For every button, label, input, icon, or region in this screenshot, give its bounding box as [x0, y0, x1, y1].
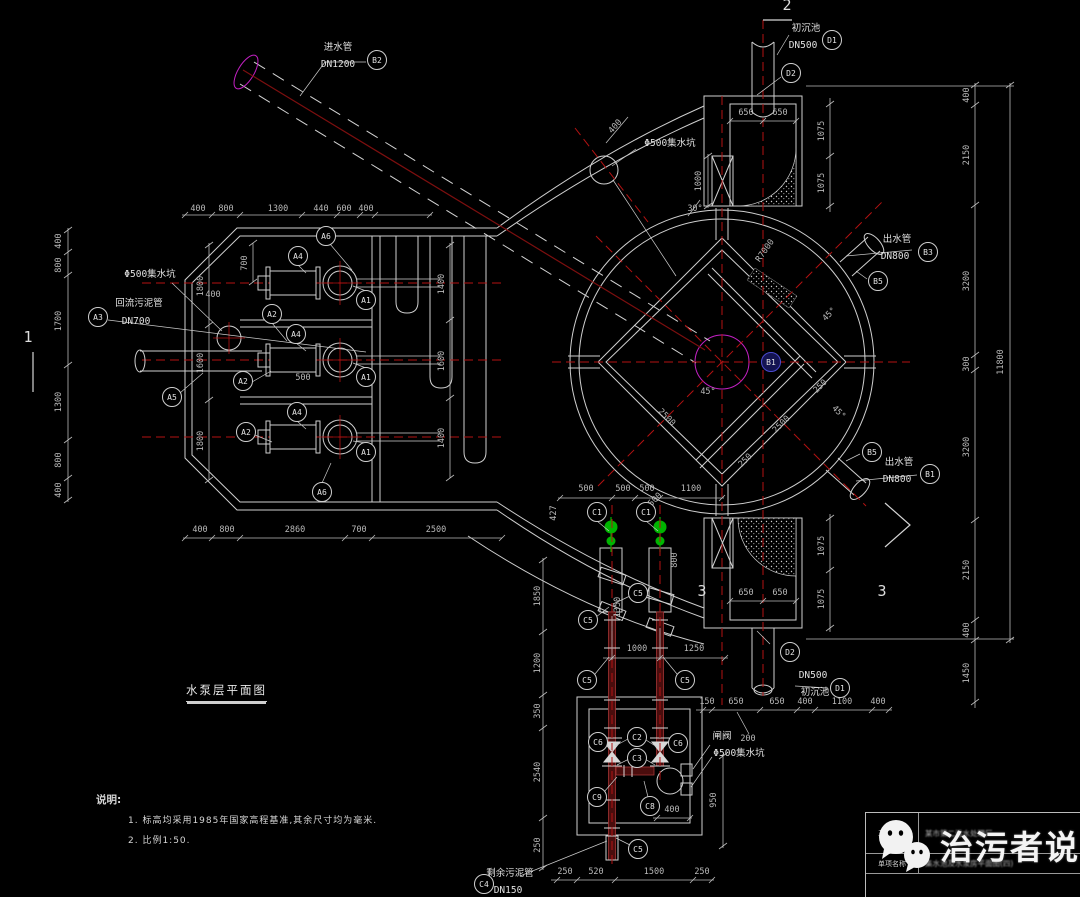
pipe-label: DN150: [494, 885, 523, 896]
tag-label: C9: [592, 793, 602, 802]
dim-text: 800: [219, 525, 234, 535]
dim-text: 2150: [962, 145, 972, 165]
pipe-label: 出水管: [883, 233, 912, 245]
dim-text: 1700: [54, 311, 64, 331]
tag-label: C1: [641, 508, 651, 517]
watermark-brand: 治污者说: [940, 821, 1080, 869]
dim-text: 1400: [437, 428, 447, 448]
wechat-icon: [874, 815, 936, 875]
dim-text: 400: [797, 697, 812, 707]
dim-text: 400: [358, 204, 373, 214]
tag-bubble-layer: B2D1D2A6A4A1A2A4A1A2A4A2A1A6A3A5B3B5B5B1…: [89, 31, 940, 894]
tag-label: C8: [645, 802, 655, 811]
dim-text: 2860: [285, 525, 305, 535]
dim-text: 250: [557, 867, 572, 877]
tag-label: A5: [167, 393, 177, 402]
dim-text: 800: [218, 204, 233, 214]
dim-text: 1350: [613, 597, 623, 617]
dim-text: 2500: [771, 414, 793, 436]
dim-text: 700: [351, 525, 366, 535]
tag-label: A4: [292, 408, 302, 417]
dim-text: 45°: [829, 404, 847, 422]
dim-text: 1500: [644, 867, 664, 877]
gate-well-bottom: [704, 518, 802, 695]
tag-label: D1: [835, 684, 845, 693]
pipe-label: DN500: [799, 670, 828, 681]
dim-text: 600: [336, 204, 351, 214]
dim-text: 650: [772, 588, 787, 598]
pipe-label: DN700: [122, 316, 151, 327]
tag-label: C6: [593, 738, 603, 747]
dim-text: 150: [699, 697, 714, 707]
dim-text: 1000: [627, 644, 647, 654]
tag-label: A2: [238, 377, 248, 386]
tag-label: A4: [293, 252, 303, 261]
upper-channel-arc: [497, 106, 704, 236]
dim-text: 1075: [817, 536, 827, 556]
dim-text: 250: [694, 867, 709, 877]
pipe-label: DN800: [881, 251, 910, 262]
tag-label: C5: [582, 676, 592, 685]
pipe-label: 初沉池: [801, 686, 830, 698]
tag-label: C5: [633, 845, 643, 854]
dim-text: 1075: [817, 589, 827, 609]
dim-text: 1300: [54, 392, 64, 412]
dim-text: 650: [738, 108, 753, 118]
notes-block: 说明: 1. 标高均采用1985年国家高程基准,其余尺寸均为毫米. 2. 比例1…: [96, 792, 377, 853]
dim-text: 1250: [684, 644, 704, 654]
tag-label: C3: [632, 754, 642, 763]
tag-label: B1: [925, 470, 935, 479]
tag-label: A4: [291, 330, 301, 339]
stair-hatch: [747, 268, 797, 308]
dim-text: 520: [588, 867, 603, 877]
pipe-label: Φ500集水坑: [713, 747, 765, 759]
section-number: 3: [877, 582, 886, 600]
dim-text: 250: [737, 452, 755, 470]
dim-text: 500: [639, 484, 654, 494]
pipe-label: 闸阀: [712, 730, 731, 742]
dim-text: 2540: [533, 762, 543, 782]
tag-label: C1: [592, 508, 602, 517]
dim-text: 1100: [681, 484, 701, 494]
tag-label: A3: [93, 313, 103, 322]
sump-circle: [657, 768, 683, 794]
dim-text: 2500: [426, 525, 446, 535]
dim-text: 1450: [962, 663, 972, 683]
check-valve-left: [605, 517, 618, 552]
watermark: 治污者说: [874, 815, 1080, 875]
dim-text: 1600: [196, 353, 206, 373]
tag-label: C4: [479, 880, 489, 889]
tag-label: A1: [361, 373, 371, 382]
drawing-title: 水泵层平面图: [186, 682, 267, 702]
pipe-label: 初沉池: [792, 22, 821, 34]
dim-text: 1600: [437, 351, 447, 371]
tag-label: B2: [372, 56, 382, 65]
dim-text: 427: [549, 505, 559, 520]
dim-text: 1100: [832, 697, 852, 707]
section-number: 3: [697, 582, 706, 600]
dim-text: 440: [313, 204, 328, 214]
tag-label: C5: [680, 676, 690, 685]
dim-text: 400: [664, 805, 679, 815]
dim-text: 1075: [817, 173, 827, 193]
dim-text: 500: [295, 373, 310, 383]
dim-text: 2150: [962, 560, 972, 580]
tag-label: D1: [827, 36, 837, 45]
dim-text: 1850: [533, 586, 543, 606]
pipe-label: DN500: [789, 40, 818, 51]
dim-text: 45°: [700, 387, 715, 397]
tag-label: C5: [583, 616, 593, 625]
dim-text: 3200: [962, 437, 972, 457]
notes-heading: 说明:: [96, 792, 377, 807]
dim-text: 400: [962, 87, 972, 102]
dim-text: 1400: [437, 274, 447, 294]
dim-text: 400: [870, 697, 885, 707]
note-item: 1. 标高均采用1985年国家高程基准,其余尺寸均为毫米.: [128, 813, 377, 826]
tag-label: C2: [632, 733, 642, 742]
dim-text: 800: [54, 452, 64, 467]
tag-label: A2: [267, 310, 277, 319]
dim-text: 400: [190, 204, 205, 214]
section-number: 2: [782, 0, 791, 14]
pump-house-walls: [185, 106, 704, 644]
tag-label: B5: [867, 448, 877, 457]
dim-text: 350: [533, 703, 543, 718]
section-number: 1: [23, 328, 32, 346]
dim-text: 250: [812, 378, 830, 396]
dim-text: 650: [738, 588, 753, 598]
dim-text: 200: [740, 734, 755, 744]
tag-label: C6: [673, 739, 683, 748]
dim-text: 3200: [962, 271, 972, 291]
tag-label: A6: [317, 488, 327, 497]
dim-text: 1000: [694, 171, 704, 191]
dim-text: 1300: [268, 204, 288, 214]
dim-text: R7000: [754, 238, 777, 265]
dim-text: 30°: [687, 204, 702, 214]
dim-text: 400: [607, 118, 625, 136]
dim-text: 500: [578, 484, 593, 494]
tag-label: B1: [766, 358, 776, 367]
cad-drawing-canvas: 4008001300440600400400800170013008004004…: [0, 0, 1080, 897]
dim-text: 400: [205, 290, 220, 300]
header-pipe: [616, 767, 654, 775]
tag-label: A1: [361, 448, 371, 457]
dim-text: 400: [962, 622, 972, 637]
dim-text: 400: [192, 525, 207, 535]
dimension-text-layer: 4008001300440600400400800170013008004004…: [54, 87, 1006, 877]
dim-text: 650: [769, 697, 784, 707]
pipe-label: 回流污泥管: [115, 297, 163, 309]
dim-text: 400: [54, 482, 64, 497]
tag-label: A2: [241, 428, 251, 437]
tag-label: B3: [923, 248, 933, 257]
dim-text: 1200: [533, 653, 543, 673]
dim-text: 45°: [821, 306, 839, 324]
pipe-label: 出水管: [885, 456, 914, 468]
dim-text: 950: [709, 792, 719, 807]
tag-label: A6: [321, 232, 331, 241]
tag-label: D2: [785, 648, 795, 657]
dim-text: 800: [670, 552, 680, 567]
dim-text: 400: [54, 233, 64, 248]
tag-label: A1: [361, 296, 371, 305]
dim-text: 11800: [996, 349, 1006, 375]
tag-label: C5: [633, 589, 643, 598]
dim-text: 1800: [196, 431, 206, 451]
dim-text: 500: [615, 484, 630, 494]
dim-text: 1075: [817, 121, 827, 141]
pipe-label: DN800: [883, 474, 912, 485]
tag-label: D2: [786, 69, 796, 78]
pipe-label: DN1200: [321, 59, 356, 70]
pipe-label: Φ500集水坑: [124, 268, 176, 280]
pipe-label: Φ500集水坑: [644, 137, 696, 149]
dim-text: 250: [533, 837, 543, 852]
dim-text: 650: [772, 108, 787, 118]
plan-drawing: 4008001300440600400400800170013008004004…: [0, 0, 1080, 897]
pipe-label: 进水管: [324, 41, 353, 53]
dim-text: 300: [962, 356, 972, 371]
tag-label: B5: [873, 277, 883, 286]
pipe-label: 剩余污泥管: [486, 867, 534, 879]
dim-text: 800: [54, 257, 64, 272]
inlet-pipe-dn1200: [229, 52, 710, 363]
dim-text: 700: [240, 255, 250, 270]
note-item: 2. 比例1:50.: [128, 833, 377, 846]
dim-text: 650: [728, 697, 743, 707]
